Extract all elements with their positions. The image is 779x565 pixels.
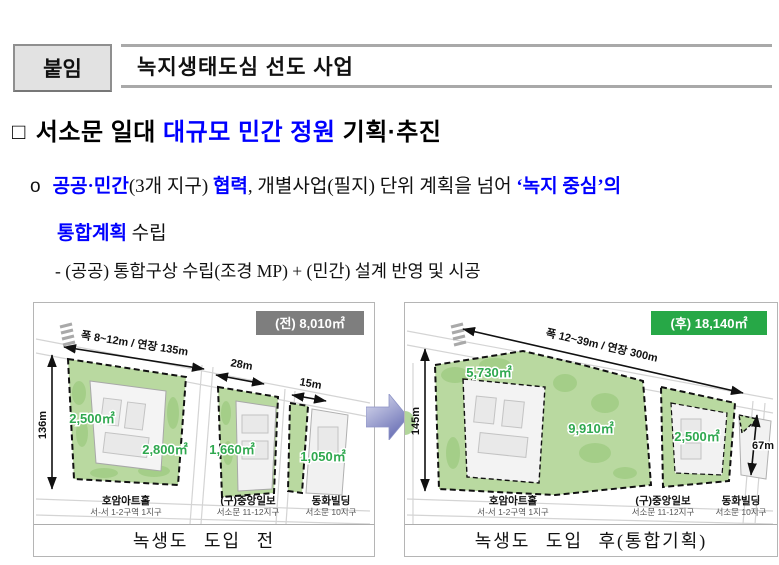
- seg-districts: (3개 지구): [129, 176, 213, 197]
- area-label-9910: 9,910㎡: [568, 421, 614, 436]
- section-heading: □서소문 일대 대규모 민간 정원 기획·추진: [12, 112, 441, 147]
- dim-mid-label: 28m: [230, 357, 254, 373]
- transition-arrow-icon: [366, 394, 408, 445]
- building-name-joongang: (구)중앙일보: [220, 494, 276, 507]
- seg-establish: 수립: [127, 223, 167, 244]
- dim-top-label: 폭 8~12m / 연장 135m: [80, 328, 189, 359]
- body-line-2: 통합계획 수립: [57, 210, 775, 257]
- building-name-donghwa: 동화빌딩: [722, 494, 761, 507]
- seg-green-centered: ‘녹지 중심’의: [516, 176, 621, 197]
- building-name-donghwa: 동화빌딩: [312, 494, 351, 507]
- building-name-hoam: 호암아트홀: [489, 494, 538, 507]
- building-sub-joongang: 서소문 11-12지구: [217, 507, 280, 517]
- heading-highlight: 대규모 민간 정원: [163, 119, 335, 146]
- area-label-5730: 5,730㎡: [466, 365, 512, 380]
- building-sub-donghwa: 서소문 10지구: [716, 507, 767, 517]
- total-area-badge-after: (후) 18,140㎡: [651, 311, 767, 335]
- crosswalk-icon: [60, 324, 75, 345]
- building-hoam: [90, 381, 166, 471]
- dim-top-label: 폭 12~39m / 연장 300m: [545, 325, 660, 364]
- page-title: 녹지생태도심 선도 사업: [121, 44, 772, 88]
- body-line-1: o공공·민간(3개 지구) 협력, 개별사업(필지) 단위 계획을 넘어 ‘녹지…: [30, 163, 775, 210]
- building-name-hoam: 호암아트홀: [102, 494, 151, 507]
- square-bullet-icon: □: [12, 119, 26, 144]
- building-hoam: [463, 379, 545, 483]
- body-paragraph: o공공·민간(3개 지구) 협력, 개별사업(필지) 단위 계획을 넘어 ‘녹지…: [30, 163, 775, 257]
- area-label-1660: 1,660㎡: [209, 442, 255, 457]
- building-sub-donghwa: 서소문 10지구: [306, 507, 357, 517]
- dim-right-label: 67m: [752, 440, 774, 452]
- sub-bullet-text: - (공공) 통합구상 수립(조경 MP) + (민간) 설계 반영 및 시공: [55, 258, 481, 283]
- site-plan-after: 145m 폭 12~39m / 연장 300m 67m 5,730㎡ 9,910…: [405, 303, 775, 524]
- slide-page: 붙임 녹지생태도심 선도 사업 □서소문 일대 대규모 민간 정원 기획·추진 …: [0, 0, 779, 565]
- heading-pre: 서소문 일대: [36, 119, 163, 146]
- park-area-c: [288, 403, 308, 493]
- heading-post: 기획·추진: [335, 119, 441, 146]
- badge-text-after: (후) 18,140㎡: [671, 316, 748, 331]
- area-label-2500: 2,500㎡: [69, 411, 115, 426]
- seg-beyond: , 개별사업(필지) 단위 계획을 넘어: [248, 176, 516, 197]
- crosswalk-icon: [451, 324, 466, 345]
- attachment-badge: 붙임: [13, 44, 112, 92]
- seg-integrated-plan: 통합계획: [57, 223, 127, 244]
- total-area-badge-before: (전) 8,010㎡: [256, 311, 364, 335]
- badge-text-before: (전) 8,010㎡: [275, 316, 345, 331]
- building-name-joongang: (구)중앙일보: [635, 494, 691, 507]
- o-bullet: o: [30, 176, 41, 197]
- caption-after: 녹생도 도입 후(통합기획): [405, 524, 777, 555]
- building-sub-joongang: 서소문 11-12지구: [632, 507, 695, 517]
- caption-before: 녹생도 도입 전: [34, 524, 374, 555]
- dim-left-label: 145m: [410, 407, 422, 435]
- seg-public-private: 공공·민간: [53, 176, 129, 197]
- area-label-1050: 1,050㎡: [300, 449, 346, 464]
- dim-left-label: 136m: [37, 411, 49, 439]
- seg-cooperation: 협력: [213, 176, 248, 197]
- site-plan-before: 136m 폭 8~12m / 연장 135m 28m 15m 2,500㎡ 2,…: [34, 303, 372, 524]
- map-after: 145m 폭 12~39m / 연장 300m 67m 5,730㎡ 9,910…: [404, 302, 778, 557]
- map-before: 136m 폭 8~12m / 연장 135m 28m 15m 2,500㎡ 2,…: [33, 302, 375, 557]
- area-label-2800: 2,800㎡: [142, 442, 188, 457]
- building-sub-hoam: 서-서 1-2구역 1지구: [477, 507, 549, 517]
- area-label-2500: 2,500㎡: [674, 429, 720, 444]
- building-sub-hoam: 서-서 1-2구역 1지구: [90, 507, 162, 517]
